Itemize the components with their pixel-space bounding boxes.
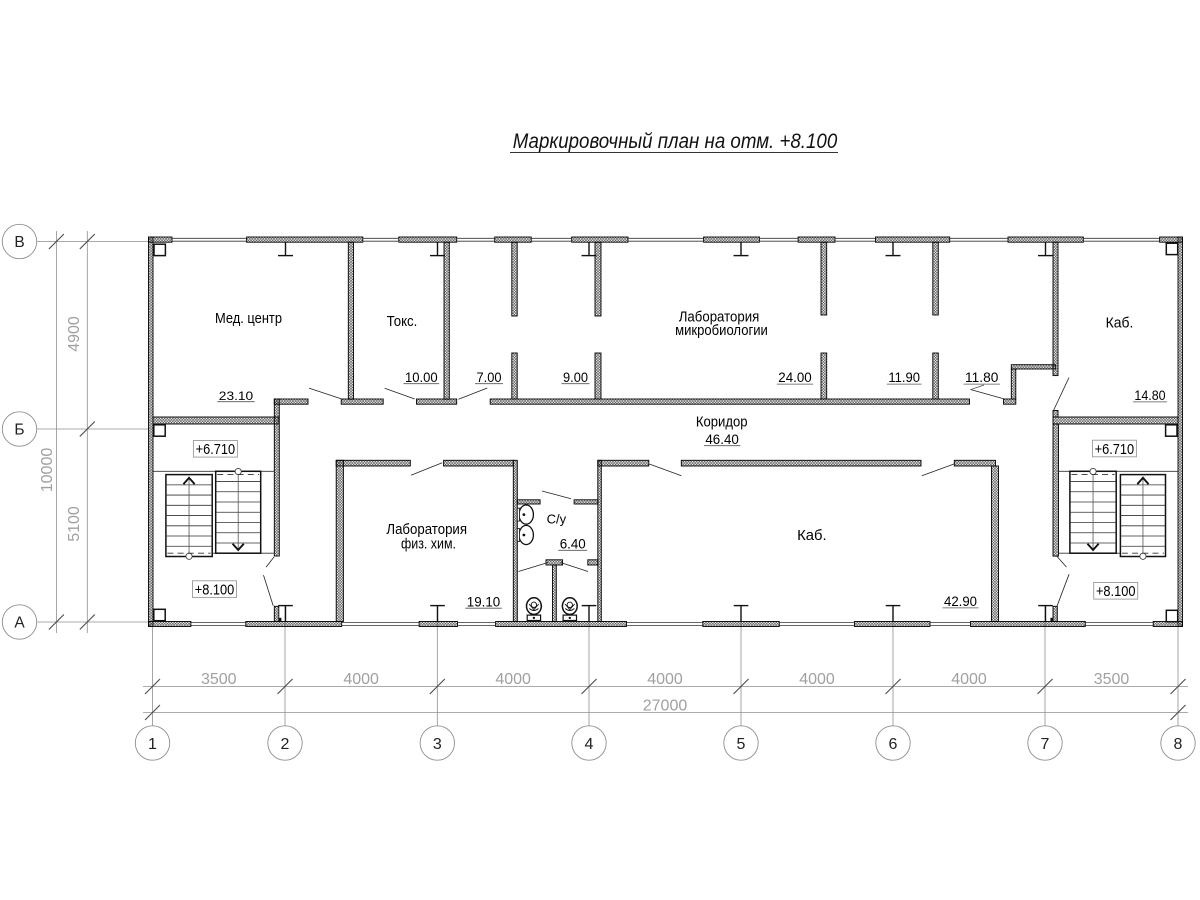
svg-text:4000: 4000 [799,671,835,688]
svg-text:1: 1 [148,736,157,753]
svg-text:4000: 4000 [647,671,683,688]
svg-text:5: 5 [737,736,746,753]
svg-text:Маркировочный план на отм. +8.: Маркировочный план на отм. +8.100 [513,130,838,153]
svg-text:4: 4 [585,736,594,753]
svg-text:4000: 4000 [495,671,531,688]
svg-text:В: В [14,234,24,251]
svg-text:Токс.: Токс. [387,314,418,330]
svg-text:Б: Б [14,422,24,439]
svg-text:Мед. центр: Мед. центр [215,311,282,327]
svg-text:+6.710: +6.710 [196,442,236,458]
svg-text:3500: 3500 [1094,671,1130,688]
svg-text:микробиологии: микробиологии [675,323,768,339]
svg-text:8: 8 [1174,736,1183,753]
svg-text:5100: 5100 [66,506,83,542]
svg-text:А: А [14,615,25,632]
svg-text:3: 3 [433,736,442,753]
svg-text:6: 6 [889,736,898,753]
svg-text:4900: 4900 [66,316,83,352]
svg-text:Коридор: Коридор [696,414,748,430]
svg-text:С/у: С/у [547,512,567,527]
svg-text:+6.710: +6.710 [1095,442,1135,458]
svg-text:27000: 27000 [643,698,688,715]
svg-text:4000: 4000 [343,671,379,688]
svg-text:3500: 3500 [201,671,237,688]
svg-text:+8.100: +8.100 [195,582,235,598]
svg-text:+8.100: +8.100 [1096,584,1136,600]
svg-text:физ. хим.: физ. хим. [401,537,456,553]
svg-text:4000: 4000 [951,671,987,688]
svg-text:23.10: 23.10 [219,389,254,403]
svg-text:10000: 10000 [39,448,56,493]
svg-text:2: 2 [281,736,290,753]
svg-text:Каб.: Каб. [797,528,827,544]
svg-text:7: 7 [1041,736,1050,753]
svg-text:Каб.: Каб. [1106,315,1134,331]
